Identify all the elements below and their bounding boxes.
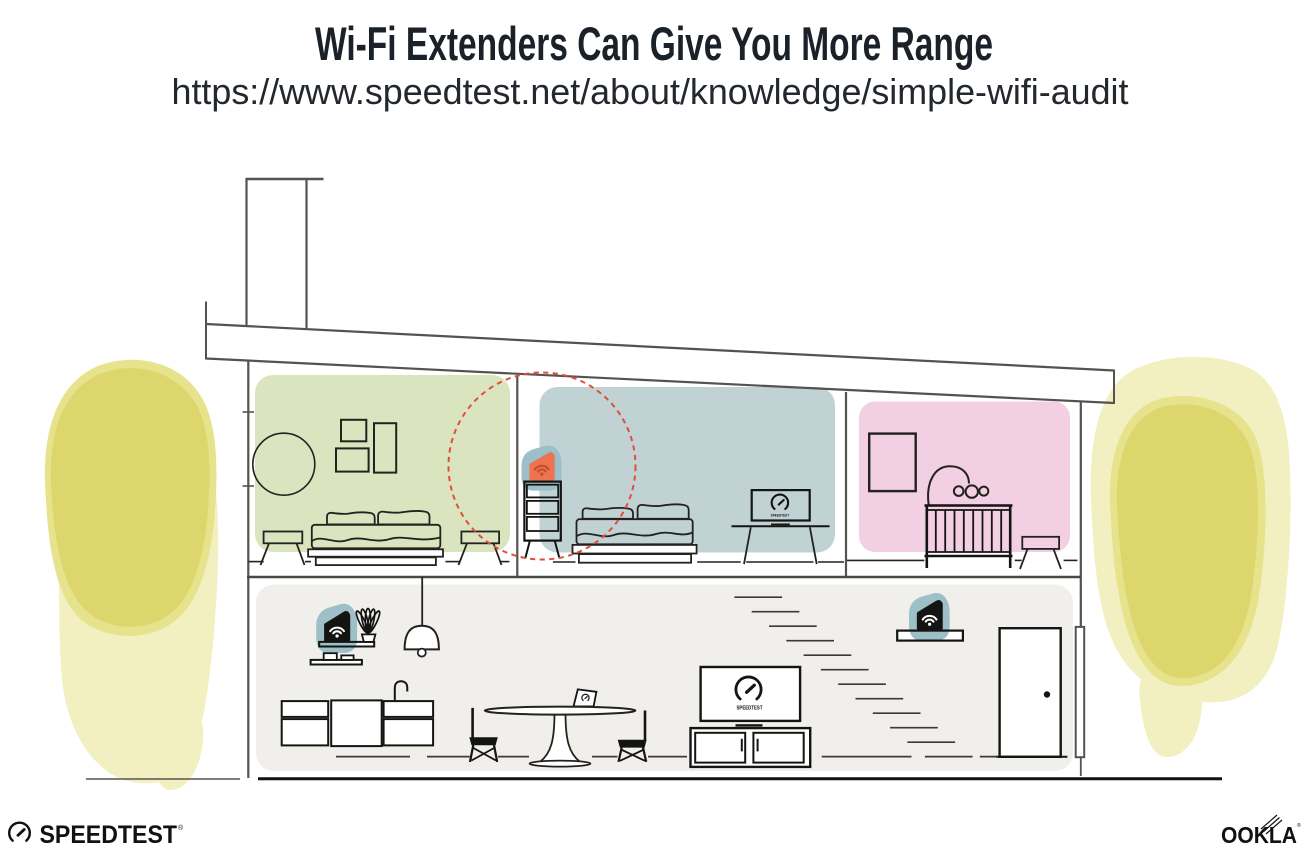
svg-text:SPEEDTEST: SPEEDTEST xyxy=(737,706,763,712)
svg-text:SPEEDTEST: SPEEDTEST xyxy=(40,821,178,849)
svg-text:®: ® xyxy=(1297,822,1301,829)
svg-text:SPEEDTEST: SPEEDTEST xyxy=(771,514,790,518)
svg-text:®: ® xyxy=(178,824,184,832)
svg-text:Wi-Fi Extenders Can Give You M: Wi-Fi Extenders Can Give You More Range xyxy=(315,17,993,70)
svg-text:OOKLA: OOKLA xyxy=(1221,822,1297,848)
svg-text:https://www.speedtest.net/abou: https://www.speedtest.net/about/knowledg… xyxy=(172,71,1129,112)
